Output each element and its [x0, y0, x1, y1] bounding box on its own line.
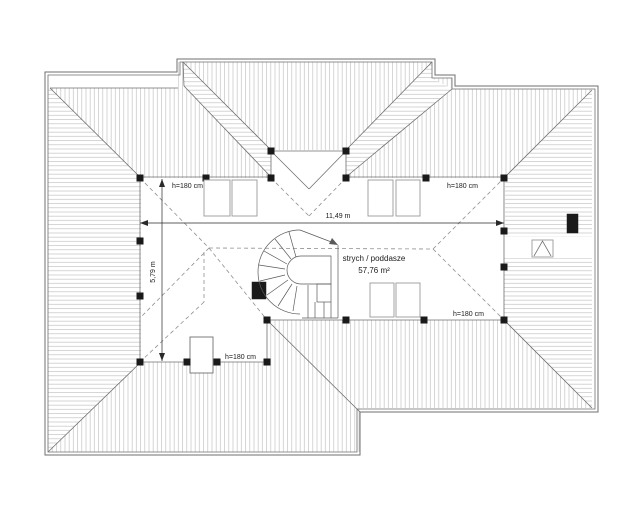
height-annotation-bottom-right: h=180 cm [453, 311, 484, 318]
stair-direction-arrow-icon [329, 238, 338, 245]
chimney-east [567, 214, 578, 233]
dim-depth-label: 5,79 m [150, 261, 157, 283]
room-label: strych / poddasze [343, 254, 406, 263]
dormer-opening [271, 150, 346, 178]
skylight [368, 180, 393, 216]
height-annotation-bottom-left: h=180 cm [225, 354, 256, 361]
dim-arrow-down-icon [159, 353, 165, 361]
spiral-staircase [258, 230, 338, 318]
dim-arrow-left-icon [140, 220, 148, 226]
roof-hatching [48, 62, 592, 452]
skylight [396, 283, 420, 317]
dim-arrow-right-icon [496, 220, 504, 226]
chimney-outline [190, 337, 213, 373]
height-annotation-top-left: h=180 cm [172, 183, 203, 190]
roof-access-window [532, 240, 553, 257]
dimension-depth: 5,79 m [150, 179, 165, 361]
skylight [370, 283, 394, 317]
dimension-width: 11,49 m [140, 213, 504, 226]
skylight [396, 180, 420, 216]
dim-arrow-up-icon [159, 179, 165, 187]
height-annotation-top-right: h=180 cm [447, 183, 478, 190]
skylight [232, 180, 257, 216]
room-area-label: 57,76 m² [358, 266, 390, 275]
attic-floor-plan: 11,49 m 5,79 m h=180 cm h=180 cm h=180 c… [0, 0, 634, 520]
chimney-stair [252, 282, 266, 299]
dim-width-label: 11,49 m [326, 213, 351, 220]
attic-plan-drawing: 11,49 m 5,79 m h=180 cm h=180 cm h=180 c… [0, 0, 634, 520]
skylight [204, 180, 230, 216]
